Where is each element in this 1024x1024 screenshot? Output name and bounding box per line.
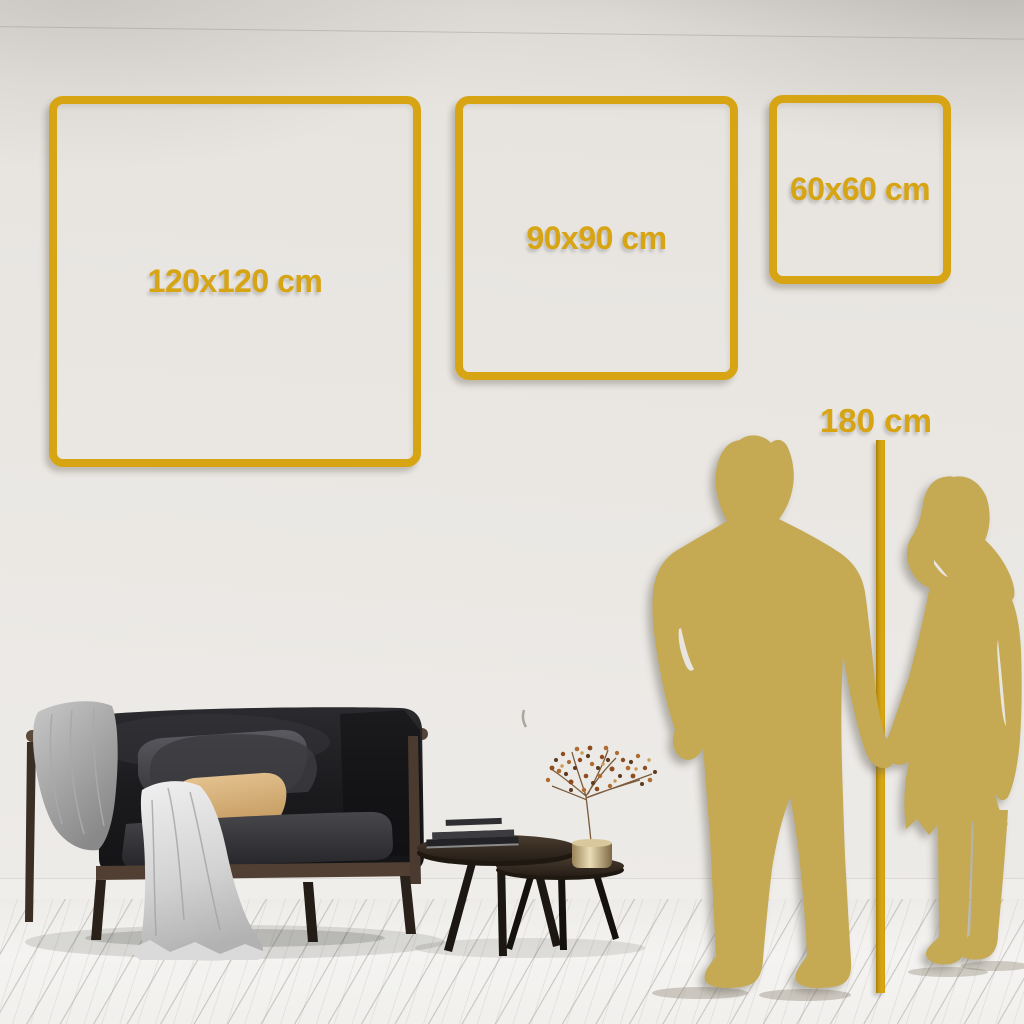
size-guide-scene: 120x120 cm 90x90 cm 60x60 cm 180 cm xyxy=(0,0,1024,1024)
foot-shadow xyxy=(652,987,748,999)
woman-silhouette xyxy=(885,476,1021,840)
couple-silhouettes xyxy=(0,0,1024,1024)
foot-shadow xyxy=(759,989,851,1001)
man-silhouette xyxy=(652,435,894,988)
